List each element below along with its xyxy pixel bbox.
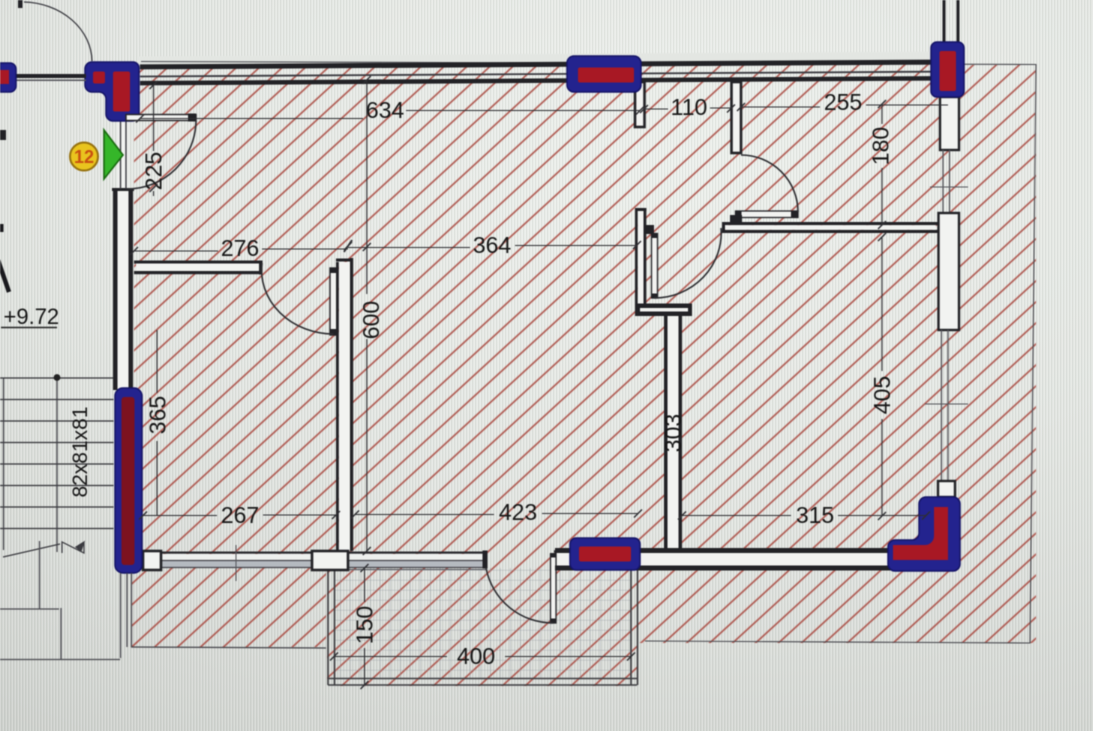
svg-text:150: 150	[352, 606, 378, 644]
svg-text:315: 315	[796, 502, 834, 528]
svg-text:400: 400	[457, 643, 495, 669]
svg-text:110: 110	[671, 94, 708, 120]
svg-text:600: 600	[358, 301, 384, 339]
svg-text:82x81x81: 82x81x81	[69, 406, 92, 497]
svg-text:423: 423	[499, 499, 537, 525]
svg-text:365: 365	[145, 396, 171, 434]
svg-text:255: 255	[824, 89, 862, 115]
svg-text:276: 276	[221, 235, 259, 261]
svg-text:180: 180	[868, 127, 894, 165]
svg-text:225: 225	[141, 152, 167, 190]
svg-text:405: 405	[869, 376, 895, 414]
svg-text:12: 12	[74, 147, 94, 167]
svg-text:+9.72: +9.72	[4, 304, 60, 329]
svg-text:364: 364	[473, 232, 512, 258]
svg-text:303: 303	[660, 414, 686, 452]
svg-text:267: 267	[221, 502, 259, 528]
svg-text:634: 634	[366, 97, 405, 123]
